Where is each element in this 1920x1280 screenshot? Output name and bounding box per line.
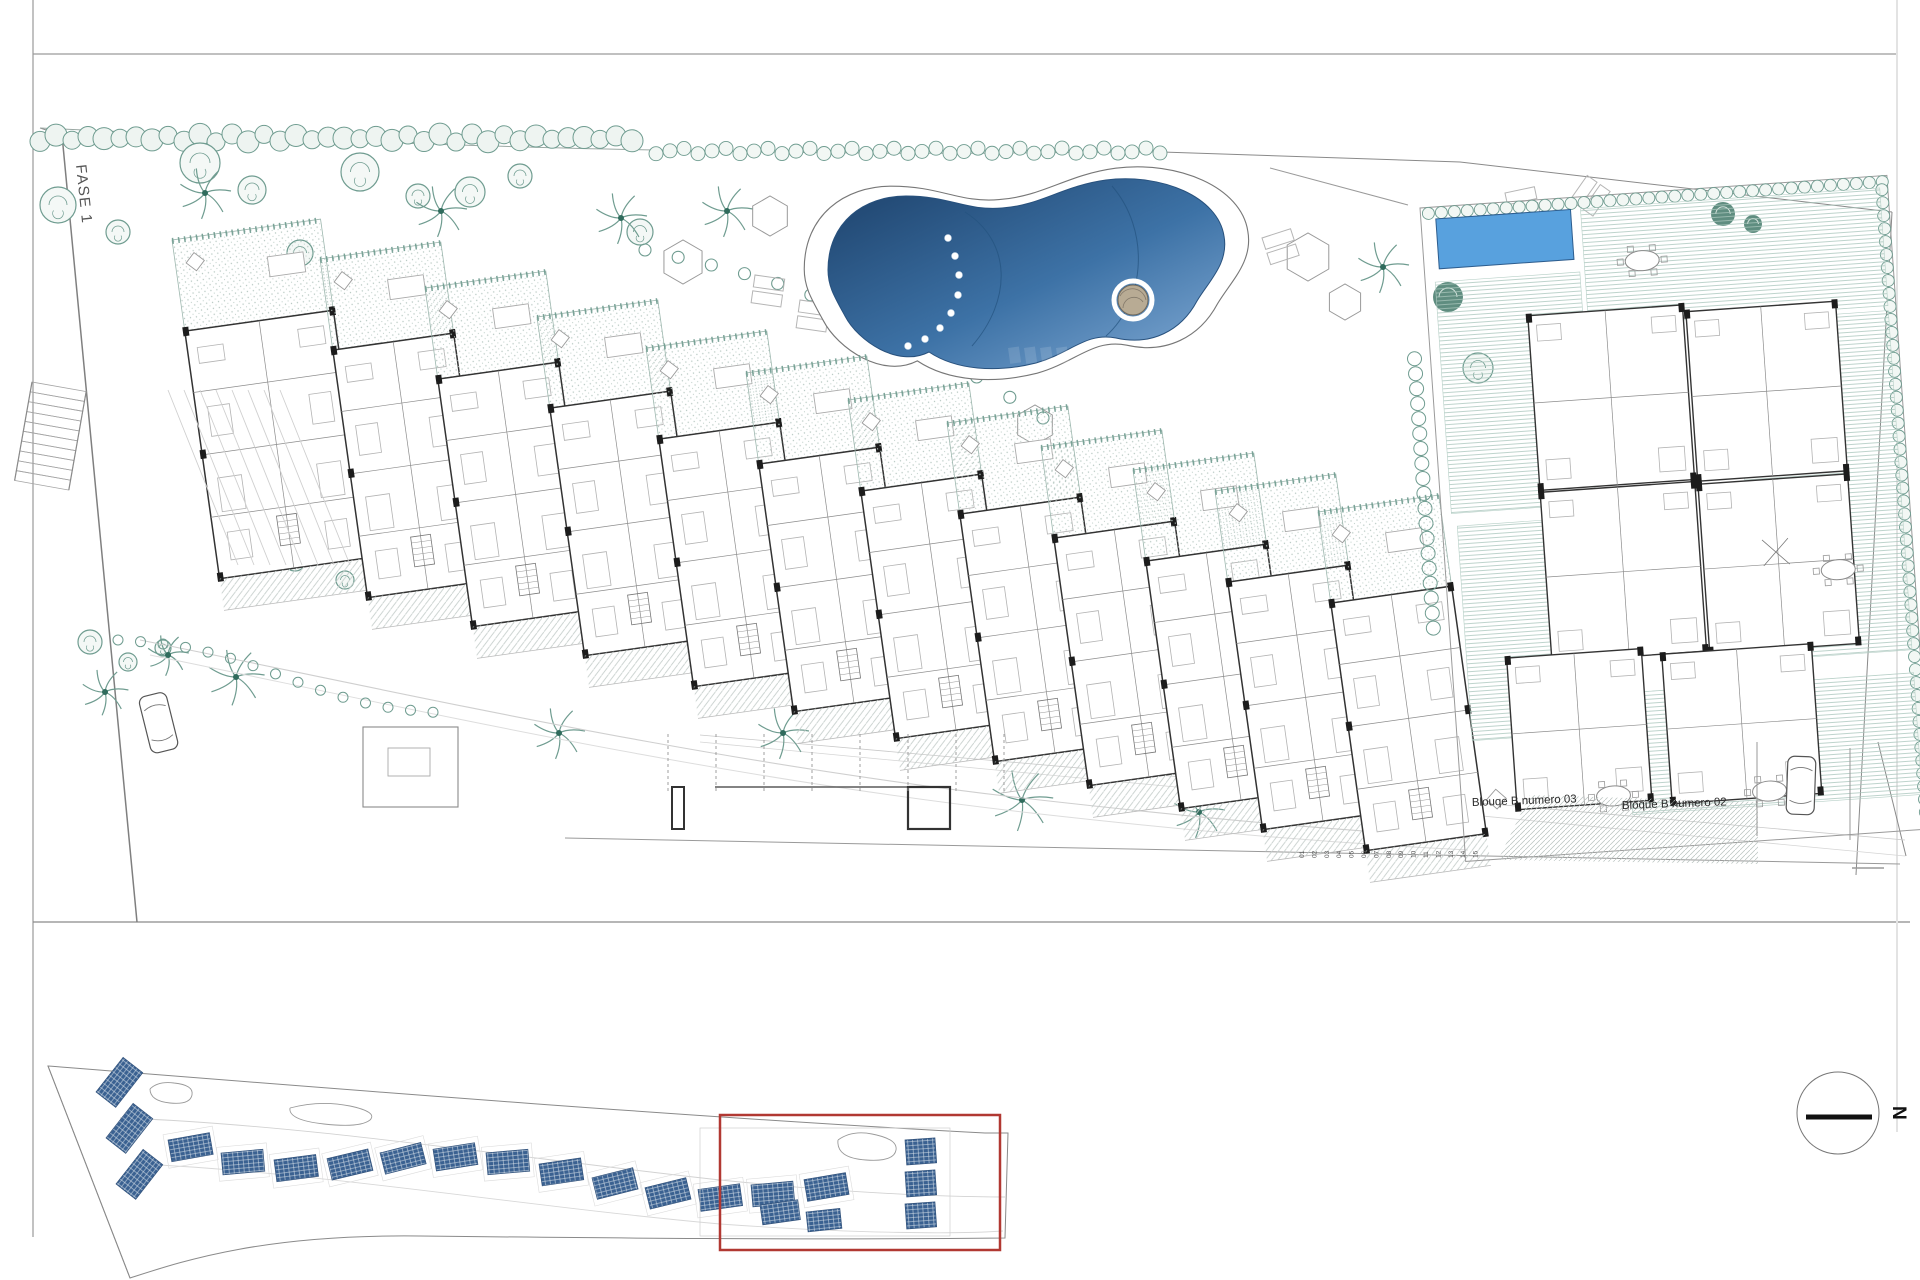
parking-number: 08 bbox=[1386, 850, 1393, 858]
parking-number: 10 bbox=[1411, 850, 1418, 858]
parking-number: 15 bbox=[1473, 850, 1480, 858]
north-label: N bbox=[1888, 1106, 1909, 1120]
parking-number: 13 bbox=[1448, 850, 1455, 858]
parking-number: 07 bbox=[1373, 850, 1380, 858]
key-plan-highlight-rectangle bbox=[720, 1115, 1000, 1250]
parking-number: 02 bbox=[1311, 850, 1318, 858]
parking-number: 04 bbox=[1336, 850, 1343, 858]
parking-number: 12 bbox=[1435, 850, 1442, 858]
north-arrow: N bbox=[1797, 1072, 1909, 1154]
parking-number: 14 bbox=[1460, 850, 1467, 858]
parking-number: 06 bbox=[1361, 850, 1368, 858]
main-pool bbox=[804, 167, 1248, 380]
parking-number: 11 bbox=[1423, 851, 1430, 858]
parking-number: 01 bbox=[1299, 850, 1306, 858]
phase-label: FASE 1 bbox=[72, 164, 95, 225]
site-plan-drawing: 010203040506070809101112131415 FASE 1 Bl… bbox=[0, 0, 1920, 1280]
architectural-site-plan-sheet: 010203040506070809101112131415 FASE 1 Bl… bbox=[0, 0, 1920, 1280]
parking-number: 03 bbox=[1324, 850, 1331, 858]
key-plan-overview bbox=[48, 1057, 1008, 1278]
parking-number: 09 bbox=[1398, 850, 1405, 858]
parking-number: 05 bbox=[1349, 850, 1356, 858]
parking-numbers-row: 010203040506070809101112131415 bbox=[1299, 850, 1480, 858]
